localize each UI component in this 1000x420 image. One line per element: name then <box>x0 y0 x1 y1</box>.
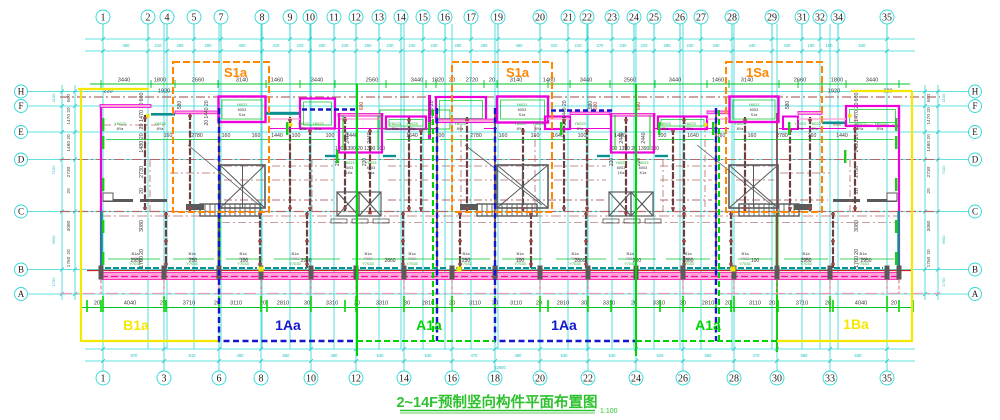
svg-text:4040: 4040 <box>855 301 867 307</box>
svg-text:220: 220 <box>297 43 305 48</box>
svg-text:2440: 2440 <box>641 132 647 143</box>
svg-text:330: 330 <box>784 43 792 48</box>
svg-text:26: 26 <box>675 13 685 24</box>
svg-text:9: 9 <box>288 13 293 24</box>
svg-text:1820: 1820 <box>432 78 444 84</box>
svg-text:7100: 7100 <box>941 165 946 175</box>
svg-text:3710: 3710 <box>183 301 195 307</box>
svg-text:E: E <box>18 127 24 137</box>
svg-text:21: 21 <box>563 13 573 24</box>
svg-text:280: 280 <box>664 43 672 48</box>
svg-text:2810: 2810 <box>277 301 289 307</box>
svg-text:14: 14 <box>396 13 406 24</box>
svg-text:F: F <box>18 101 23 111</box>
svg-text:1Ba: 1Ba <box>843 316 869 332</box>
svg-text:E: E <box>972 127 978 137</box>
svg-text:F: F <box>972 101 977 111</box>
svg-text:20: 20 <box>489 78 495 84</box>
svg-text:S1a: S1a <box>224 65 248 80</box>
svg-text:28: 28 <box>729 374 739 385</box>
svg-text:1440: 1440 <box>836 133 848 139</box>
svg-text:8Ya: 8Ya <box>857 126 865 131</box>
svg-text:20: 20 <box>535 374 545 385</box>
svg-text:2730: 2730 <box>66 166 72 177</box>
svg-text:160: 160 <box>164 133 173 139</box>
svg-text:610: 610 <box>189 353 197 358</box>
svg-text:Y6021: Y6021 <box>517 103 528 107</box>
svg-text:B1a: B1a <box>123 317 149 333</box>
svg-text:530: 530 <box>377 353 385 358</box>
svg-text:5: 5 <box>192 13 197 24</box>
svg-text:1Sa: 1Sa <box>746 65 770 80</box>
svg-text:290: 290 <box>177 43 185 48</box>
svg-text:A: A <box>18 289 25 299</box>
svg-text:33: 33 <box>825 374 835 385</box>
svg-text:4040: 4040 <box>124 301 136 307</box>
svg-text:K1a: K1a <box>368 171 376 175</box>
svg-text:20: 20 <box>926 249 932 255</box>
svg-text:20: 20 <box>160 301 166 307</box>
svg-text:100: 100 <box>292 133 301 139</box>
svg-text:3440: 3440 <box>311 78 323 84</box>
svg-text:8Ya: 8Ya <box>812 126 820 131</box>
svg-text:100 1390 20 1390 100: 100 1390 20 1390 100 <box>609 146 659 152</box>
svg-text:2~14F预制竖向构件平面布置图: 2~14F预制竖向构件平面布置图 <box>396 393 597 411</box>
svg-text:6: 6 <box>217 374 222 385</box>
svg-text:190: 190 <box>808 43 816 48</box>
svg-text:3440: 3440 <box>118 78 130 84</box>
svg-text:23: 23 <box>607 13 617 24</box>
svg-text:2780: 2780 <box>776 133 788 139</box>
svg-text:K1a: K1a <box>640 171 648 175</box>
svg-text:3310: 3310 <box>376 301 388 307</box>
svg-text:250: 250 <box>633 258 642 264</box>
svg-text:H: H <box>18 87 25 97</box>
svg-text:2780: 2780 <box>470 133 482 139</box>
svg-text:1760: 1760 <box>66 256 72 267</box>
svg-text:Y6023: Y6023 <box>344 161 355 165</box>
svg-text:8Ya: 8Ya <box>409 126 417 131</box>
svg-text:6003: 6003 <box>345 166 353 170</box>
svg-text:100: 100 <box>578 133 587 139</box>
svg-text:11: 11 <box>329 13 339 24</box>
svg-text:2440: 2440 <box>619 132 625 143</box>
svg-text:8Ya: 8Ya <box>737 126 745 131</box>
svg-text:24: 24 <box>631 374 641 385</box>
svg-text:B: B <box>972 265 978 275</box>
svg-text:8Ya: 8Ya <box>117 126 125 131</box>
svg-text:6003: 6003 <box>617 166 625 170</box>
svg-text:580: 580 <box>801 353 809 358</box>
svg-text:20: 20 <box>66 188 72 194</box>
svg-text:A: A <box>972 289 979 299</box>
svg-text:1470 20: 1470 20 <box>926 107 932 125</box>
svg-text:310: 310 <box>273 43 281 48</box>
svg-text:C: C <box>18 207 24 217</box>
svg-text:20: 20 <box>139 249 145 255</box>
svg-text:1100: 1100 <box>941 93 946 102</box>
svg-text:1460: 1460 <box>712 78 724 84</box>
svg-text:3080: 3080 <box>926 220 932 231</box>
svg-text:3080: 3080 <box>139 220 145 232</box>
svg-text:490: 490 <box>331 353 339 358</box>
svg-text:2810: 2810 <box>557 301 569 307</box>
svg-text:3440: 3440 <box>580 78 592 84</box>
svg-text:450: 450 <box>239 43 247 48</box>
svg-text:20 1440 20: 20 1440 20 <box>562 100 568 125</box>
svg-text:530: 530 <box>425 353 433 358</box>
svg-text:25: 25 <box>649 13 659 24</box>
svg-text:2860: 2860 <box>384 258 395 264</box>
svg-text:10: 10 <box>305 13 315 24</box>
svg-text:1640: 1640 <box>406 133 418 139</box>
svg-text:2860: 2860 <box>574 258 585 264</box>
svg-text:20: 20 <box>725 301 731 307</box>
svg-text:17: 17 <box>466 13 476 24</box>
svg-text:1700: 1700 <box>51 277 56 287</box>
svg-text:3080: 3080 <box>854 220 860 232</box>
svg-text:160: 160 <box>717 133 726 139</box>
svg-text:13: 13 <box>374 13 384 24</box>
svg-text:670: 670 <box>131 353 139 358</box>
svg-text:20: 20 <box>769 301 775 307</box>
svg-text:Y6023: Y6023 <box>616 161 627 165</box>
svg-text:190: 190 <box>826 43 834 48</box>
svg-text:100: 100 <box>516 258 525 264</box>
svg-text:8Ya: 8Ya <box>517 126 525 131</box>
svg-text:240: 240 <box>620 43 628 48</box>
svg-text:8Ya: 8Ya <box>457 126 465 131</box>
svg-text:3310: 3310 <box>653 301 665 307</box>
svg-text:160: 160 <box>808 133 817 139</box>
svg-text:260: 260 <box>319 43 327 48</box>
svg-text:S1a: S1a <box>239 113 247 117</box>
svg-text:22: 22 <box>583 374 593 385</box>
svg-text:3110: 3110 <box>230 301 242 307</box>
svg-text:220: 220 <box>641 43 649 48</box>
svg-text:580: 580 <box>785 101 791 110</box>
svg-text:250: 250 <box>189 258 198 264</box>
svg-text:630: 630 <box>855 353 863 358</box>
svg-text:29: 29 <box>767 13 777 24</box>
svg-text:2660: 2660 <box>794 78 806 84</box>
svg-text:2720: 2720 <box>466 78 478 84</box>
svg-text:460: 460 <box>516 43 524 48</box>
svg-text:3: 3 <box>162 374 167 385</box>
svg-text:24: 24 <box>629 13 639 24</box>
svg-text:1920: 1920 <box>828 89 840 95</box>
svg-text:12: 12 <box>351 374 361 385</box>
svg-text:520: 520 <box>657 353 665 358</box>
svg-text:2860: 2860 <box>682 258 693 264</box>
svg-text:580: 580 <box>177 101 183 110</box>
svg-text:1760: 1760 <box>926 256 932 267</box>
svg-text:2440: 2440 <box>367 132 373 143</box>
svg-text:160: 160 <box>531 133 540 139</box>
svg-text:16: 16 <box>440 13 450 24</box>
svg-text:600: 600 <box>926 94 932 102</box>
svg-text:550: 550 <box>283 353 291 358</box>
svg-text:490: 490 <box>515 353 523 358</box>
svg-text:31: 31 <box>797 13 807 24</box>
svg-text:2: 2 <box>146 13 151 24</box>
svg-text:S1a: S1a <box>519 113 527 117</box>
svg-text:14: 14 <box>399 374 409 385</box>
svg-text:7100: 7100 <box>51 165 56 175</box>
svg-text:8: 8 <box>259 374 264 385</box>
svg-text:250: 250 <box>462 258 471 264</box>
svg-text:1800: 1800 <box>154 78 166 84</box>
svg-text:1Ka: 1Ka <box>346 171 354 175</box>
svg-text:30: 30 <box>772 374 782 385</box>
svg-text:160: 160 <box>252 133 261 139</box>
svg-text:20: 20 <box>891 301 897 307</box>
svg-text:16: 16 <box>447 374 457 385</box>
svg-text:28: 28 <box>727 13 737 24</box>
svg-text:8Ya: 8Ya <box>662 126 670 131</box>
svg-text:Y7033: Y7033 <box>739 261 751 266</box>
svg-text:1Aa: 1Aa <box>551 317 577 333</box>
svg-text:3600: 3600 <box>941 235 946 245</box>
svg-text:30: 30 <box>581 301 587 307</box>
svg-text:2780: 2780 <box>191 133 203 139</box>
svg-text:3710: 3710 <box>796 301 808 307</box>
svg-text:20 1440 20: 20 1440 20 <box>204 100 210 125</box>
svg-text:600: 600 <box>66 94 72 102</box>
svg-text:1460: 1460 <box>271 78 283 84</box>
svg-text:6003: 6003 <box>750 108 758 112</box>
svg-text:8Ya: 8Ya <box>315 126 323 131</box>
svg-text:6003: 6003 <box>518 108 526 112</box>
svg-text:35: 35 <box>882 13 892 24</box>
svg-text:3310: 3310 <box>603 301 615 307</box>
svg-text:560: 560 <box>705 353 713 358</box>
svg-text:Y6021: Y6021 <box>749 103 760 107</box>
svg-text:1: 1 <box>101 13 106 24</box>
svg-text:2660: 2660 <box>192 78 204 84</box>
svg-text:30: 30 <box>304 301 310 307</box>
svg-text:Y7033: Y7033 <box>406 261 418 266</box>
svg-text:10: 10 <box>306 374 316 385</box>
svg-text:210: 210 <box>575 43 583 48</box>
svg-text:240: 240 <box>342 43 350 48</box>
svg-text:27: 27 <box>696 13 706 24</box>
svg-text:2950: 2950 <box>860 258 871 264</box>
svg-text:460: 460 <box>237 353 245 358</box>
svg-text:1920: 1920 <box>158 89 170 95</box>
svg-text:Y6021: Y6021 <box>237 103 248 107</box>
svg-text:8Ya: 8Ya <box>577 126 585 131</box>
svg-text:C: C <box>972 207 978 217</box>
svg-text:D: D <box>18 155 25 165</box>
svg-text:34: 34 <box>833 13 843 24</box>
svg-text:19: 19 <box>493 13 503 24</box>
svg-text:26: 26 <box>678 374 688 385</box>
svg-text:540: 540 <box>859 43 867 48</box>
svg-text:2950: 2950 <box>800 258 811 264</box>
svg-text:A1a: A1a <box>695 317 721 333</box>
svg-text:530: 530 <box>609 353 617 358</box>
svg-text:8: 8 <box>260 13 265 24</box>
svg-text:490: 490 <box>123 43 131 48</box>
svg-text:160: 160 <box>748 133 757 139</box>
svg-text:6003: 6003 <box>367 166 375 170</box>
svg-text:1440: 1440 <box>271 133 283 139</box>
svg-text:20: 20 <box>94 301 100 307</box>
svg-text:210: 210 <box>155 43 163 48</box>
svg-text:240: 240 <box>409 43 417 48</box>
svg-text:100: 100 <box>240 258 249 264</box>
svg-text:S1a: S1a <box>506 65 530 80</box>
svg-text:7: 7 <box>219 13 224 24</box>
svg-text:2810: 2810 <box>702 301 714 307</box>
svg-text:35: 35 <box>882 374 892 385</box>
svg-text:20: 20 <box>926 188 932 194</box>
svg-text:3080: 3080 <box>66 220 72 231</box>
svg-text:160: 160 <box>222 133 231 139</box>
svg-text:12: 12 <box>351 13 361 24</box>
svg-text:290: 290 <box>481 43 489 48</box>
svg-text:Y6023: Y6023 <box>638 161 649 165</box>
svg-text:8Ya: 8Ya <box>687 126 695 131</box>
svg-text:3600: 3600 <box>51 235 56 245</box>
svg-text:1800: 1800 <box>831 78 843 84</box>
svg-text:1460: 1460 <box>543 78 555 84</box>
svg-text:310: 310 <box>551 43 559 48</box>
svg-text:1:100: 1:100 <box>600 408 618 415</box>
svg-text:4: 4 <box>165 13 170 24</box>
svg-text:600: 600 <box>359 102 365 111</box>
svg-text:20: 20 <box>535 13 545 24</box>
svg-text:A1a: A1a <box>416 317 442 333</box>
svg-text:3440: 3440 <box>669 78 681 84</box>
svg-text:8Ya: 8Ya <box>300 126 308 131</box>
svg-text:3110: 3110 <box>749 301 761 307</box>
svg-text:20: 20 <box>536 301 542 307</box>
svg-text:20: 20 <box>66 249 72 255</box>
svg-text:160: 160 <box>499 133 508 139</box>
svg-text:D: D <box>972 155 979 165</box>
svg-text:230: 230 <box>687 43 695 48</box>
svg-text:8Ya: 8Ya <box>157 126 165 131</box>
svg-text:32: 32 <box>815 13 825 24</box>
svg-text:1: 1 <box>101 374 106 385</box>
svg-text:1480 20: 1480 20 <box>926 134 932 152</box>
svg-text:3110: 3110 <box>469 301 481 307</box>
svg-text:B: B <box>18 265 24 275</box>
svg-text:30: 30 <box>404 301 410 307</box>
svg-text:100: 100 <box>326 133 335 139</box>
svg-text:270: 270 <box>597 43 605 48</box>
svg-text:530: 530 <box>561 353 569 358</box>
svg-text:340: 340 <box>713 43 721 48</box>
svg-text:1640: 1640 <box>687 133 699 139</box>
svg-text:470: 470 <box>753 353 761 358</box>
svg-text:290: 290 <box>205 43 213 48</box>
svg-text:Y6023: Y6023 <box>366 161 377 165</box>
svg-text:240: 240 <box>387 43 395 48</box>
svg-text:2560: 2560 <box>366 78 378 84</box>
svg-text:15: 15 <box>418 13 428 24</box>
svg-text:1480 20: 1480 20 <box>66 134 72 152</box>
svg-text:8Ya: 8Ya <box>392 126 400 131</box>
svg-text:2730: 2730 <box>926 166 932 177</box>
svg-text:1700: 1700 <box>941 277 946 287</box>
svg-text:3110: 3110 <box>510 301 522 307</box>
svg-text:8Ya: 8Ya <box>877 126 885 131</box>
svg-text:2560: 2560 <box>624 78 636 84</box>
svg-text:1470 20: 1470 20 <box>66 107 72 125</box>
svg-text:8Ya: 8Ya <box>535 126 543 131</box>
svg-text:S1a: S1a <box>751 113 759 117</box>
svg-text:22: 22 <box>582 13 592 24</box>
svg-text:6003: 6003 <box>238 108 246 112</box>
svg-text:8Ya: 8Ya <box>797 126 805 131</box>
svg-text:6003: 6003 <box>639 166 647 170</box>
svg-text:220: 220 <box>609 158 615 167</box>
svg-text:3310: 3310 <box>326 301 338 307</box>
svg-text:440: 440 <box>749 43 757 48</box>
svg-text:1Aa: 1Aa <box>275 317 301 333</box>
svg-text:1100: 1100 <box>51 93 56 102</box>
svg-text:100: 100 <box>751 258 760 264</box>
svg-text:52800: 52800 <box>494 365 506 370</box>
svg-text:2950: 2950 <box>130 258 141 264</box>
svg-text:240: 240 <box>431 43 439 48</box>
svg-text:470: 470 <box>471 353 479 358</box>
svg-text:H: H <box>972 87 979 97</box>
svg-text:Y7033: Y7033 <box>362 261 374 266</box>
svg-text:2440: 2440 <box>345 132 351 143</box>
svg-text:280: 280 <box>455 43 463 48</box>
svg-text:18: 18 <box>490 374 500 385</box>
svg-text:3440: 3440 <box>411 78 423 84</box>
svg-text:250: 250 <box>365 43 373 48</box>
svg-text:1Ka: 1Ka <box>618 171 626 175</box>
svg-text:3440: 3440 <box>866 78 878 84</box>
svg-text:2950: 2950 <box>300 258 311 264</box>
svg-text:600: 600 <box>593 102 599 111</box>
